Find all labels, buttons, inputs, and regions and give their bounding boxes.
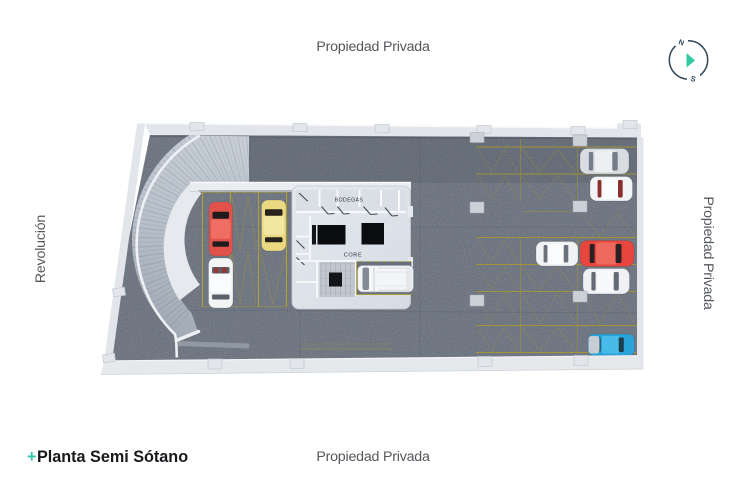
svg-text:Revolución: Revolución: [33, 215, 49, 283]
svg-text:Propiedad Privada: Propiedad Privada: [316, 449, 430, 465]
svg-text:BODEGAS: BODEGAS: [335, 198, 364, 204]
svg-text:CORE: CORE: [344, 253, 363, 259]
svg-text:+Planta Semi Sótano: +Planta Semi Sótano: [27, 448, 188, 466]
svg-text:Propiedad Privada: Propiedad Privada: [316, 39, 430, 55]
svg-text:Propiedad Privada: Propiedad Privada: [700, 196, 716, 310]
